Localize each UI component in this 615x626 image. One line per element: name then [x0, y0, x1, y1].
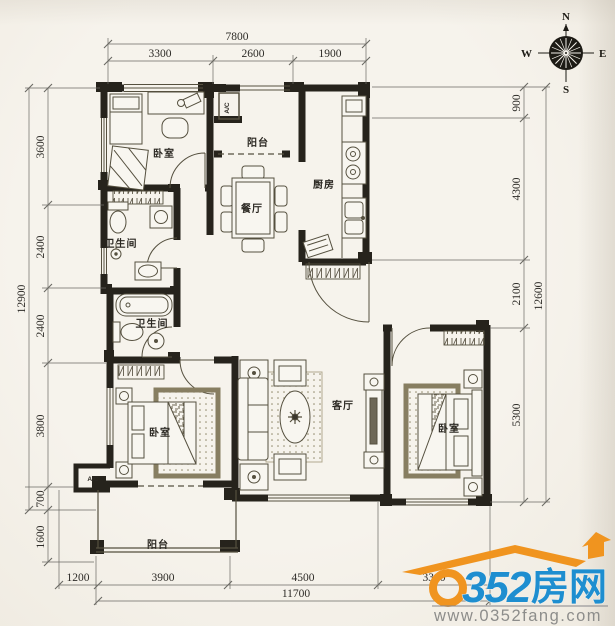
room-label-bedroom-right: 卧室	[438, 422, 460, 435]
dim-right-seg1: 900	[511, 94, 523, 112]
dim-left-total: 12900	[16, 284, 28, 313]
dim-left-seg6: 1600	[35, 525, 47, 548]
room-label-living: 客厅	[331, 399, 354, 412]
dim-top-seg3: 1900	[319, 48, 342, 60]
logo-zero-ring-icon	[433, 573, 463, 603]
logo-digits: 352	[462, 563, 532, 612]
dim-right-seg4: 5300	[511, 403, 523, 426]
dim-bottom-seg3: 4500	[292, 572, 315, 584]
dim-right-seg2: 4300	[511, 177, 523, 200]
dim-left-seg4: 3800	[35, 414, 47, 437]
dim-bottom-seg1: 1200	[67, 572, 90, 584]
logo-roof-arrow-icon	[582, 532, 611, 559]
floor-plan-svg: 卧室 阳台 厨房 餐厅 卫生间 卫生间 卧室 客厅 卧室 阳台 A/C A/C …	[0, 0, 615, 626]
dim-bottom-total: 11700	[282, 588, 311, 600]
logo-website-url: www.0352fang.com	[433, 607, 602, 625]
dim-right-seg3: 2100	[511, 282, 523, 305]
dim-right-total: 12600	[533, 281, 545, 310]
bedroom-top-furniture	[108, 92, 204, 190]
compass-n: N	[562, 11, 570, 23]
dim-left-seg5: 700	[35, 490, 47, 508]
compass-rose: N S W E	[521, 11, 606, 96]
living-furniture	[238, 360, 384, 490]
compass-e: E	[599, 48, 606, 60]
room-label-bathroom-lower: 卫生间	[136, 317, 169, 330]
room-label-balcony-bottom: 阳台	[147, 538, 169, 551]
floorplan-page: 卧室 阳台 厨房 餐厅 卫生间 卫生间 卧室 客厅 卧室 阳台 A/C A/C …	[0, 0, 615, 626]
dim-left-seg2: 2400	[35, 235, 47, 258]
logo-cn-text: 房网	[531, 567, 607, 609]
dim-top-seg2: 2600	[242, 48, 265, 60]
ac-label-top: A/C	[224, 102, 231, 114]
compass-s: S	[563, 84, 569, 96]
ac-label-bottom: A/C	[87, 476, 99, 483]
compass-w: W	[521, 48, 532, 60]
dim-top-total: 7800	[226, 31, 249, 43]
room-label-bathroom-upper: 卫生间	[105, 237, 138, 250]
dim-left-seg3: 2400	[35, 314, 47, 337]
dim-top-seg1: 3300	[149, 48, 172, 60]
dim-bottom-seg2: 3900	[152, 572, 175, 584]
room-label-balcony-top: 阳台	[247, 136, 269, 149]
dim-left-seg1: 3600	[35, 135, 47, 158]
site-logo: 352 房网 www.0352fang.com	[402, 532, 611, 625]
kitchen-fixtures	[303, 96, 366, 258]
room-label-kitchen: 厨房	[313, 178, 335, 191]
room-label-bedroom-top: 卧室	[153, 147, 175, 160]
room-label-bedroom-left: 卧室	[149, 426, 171, 439]
room-label-dining: 餐厅	[240, 202, 263, 215]
